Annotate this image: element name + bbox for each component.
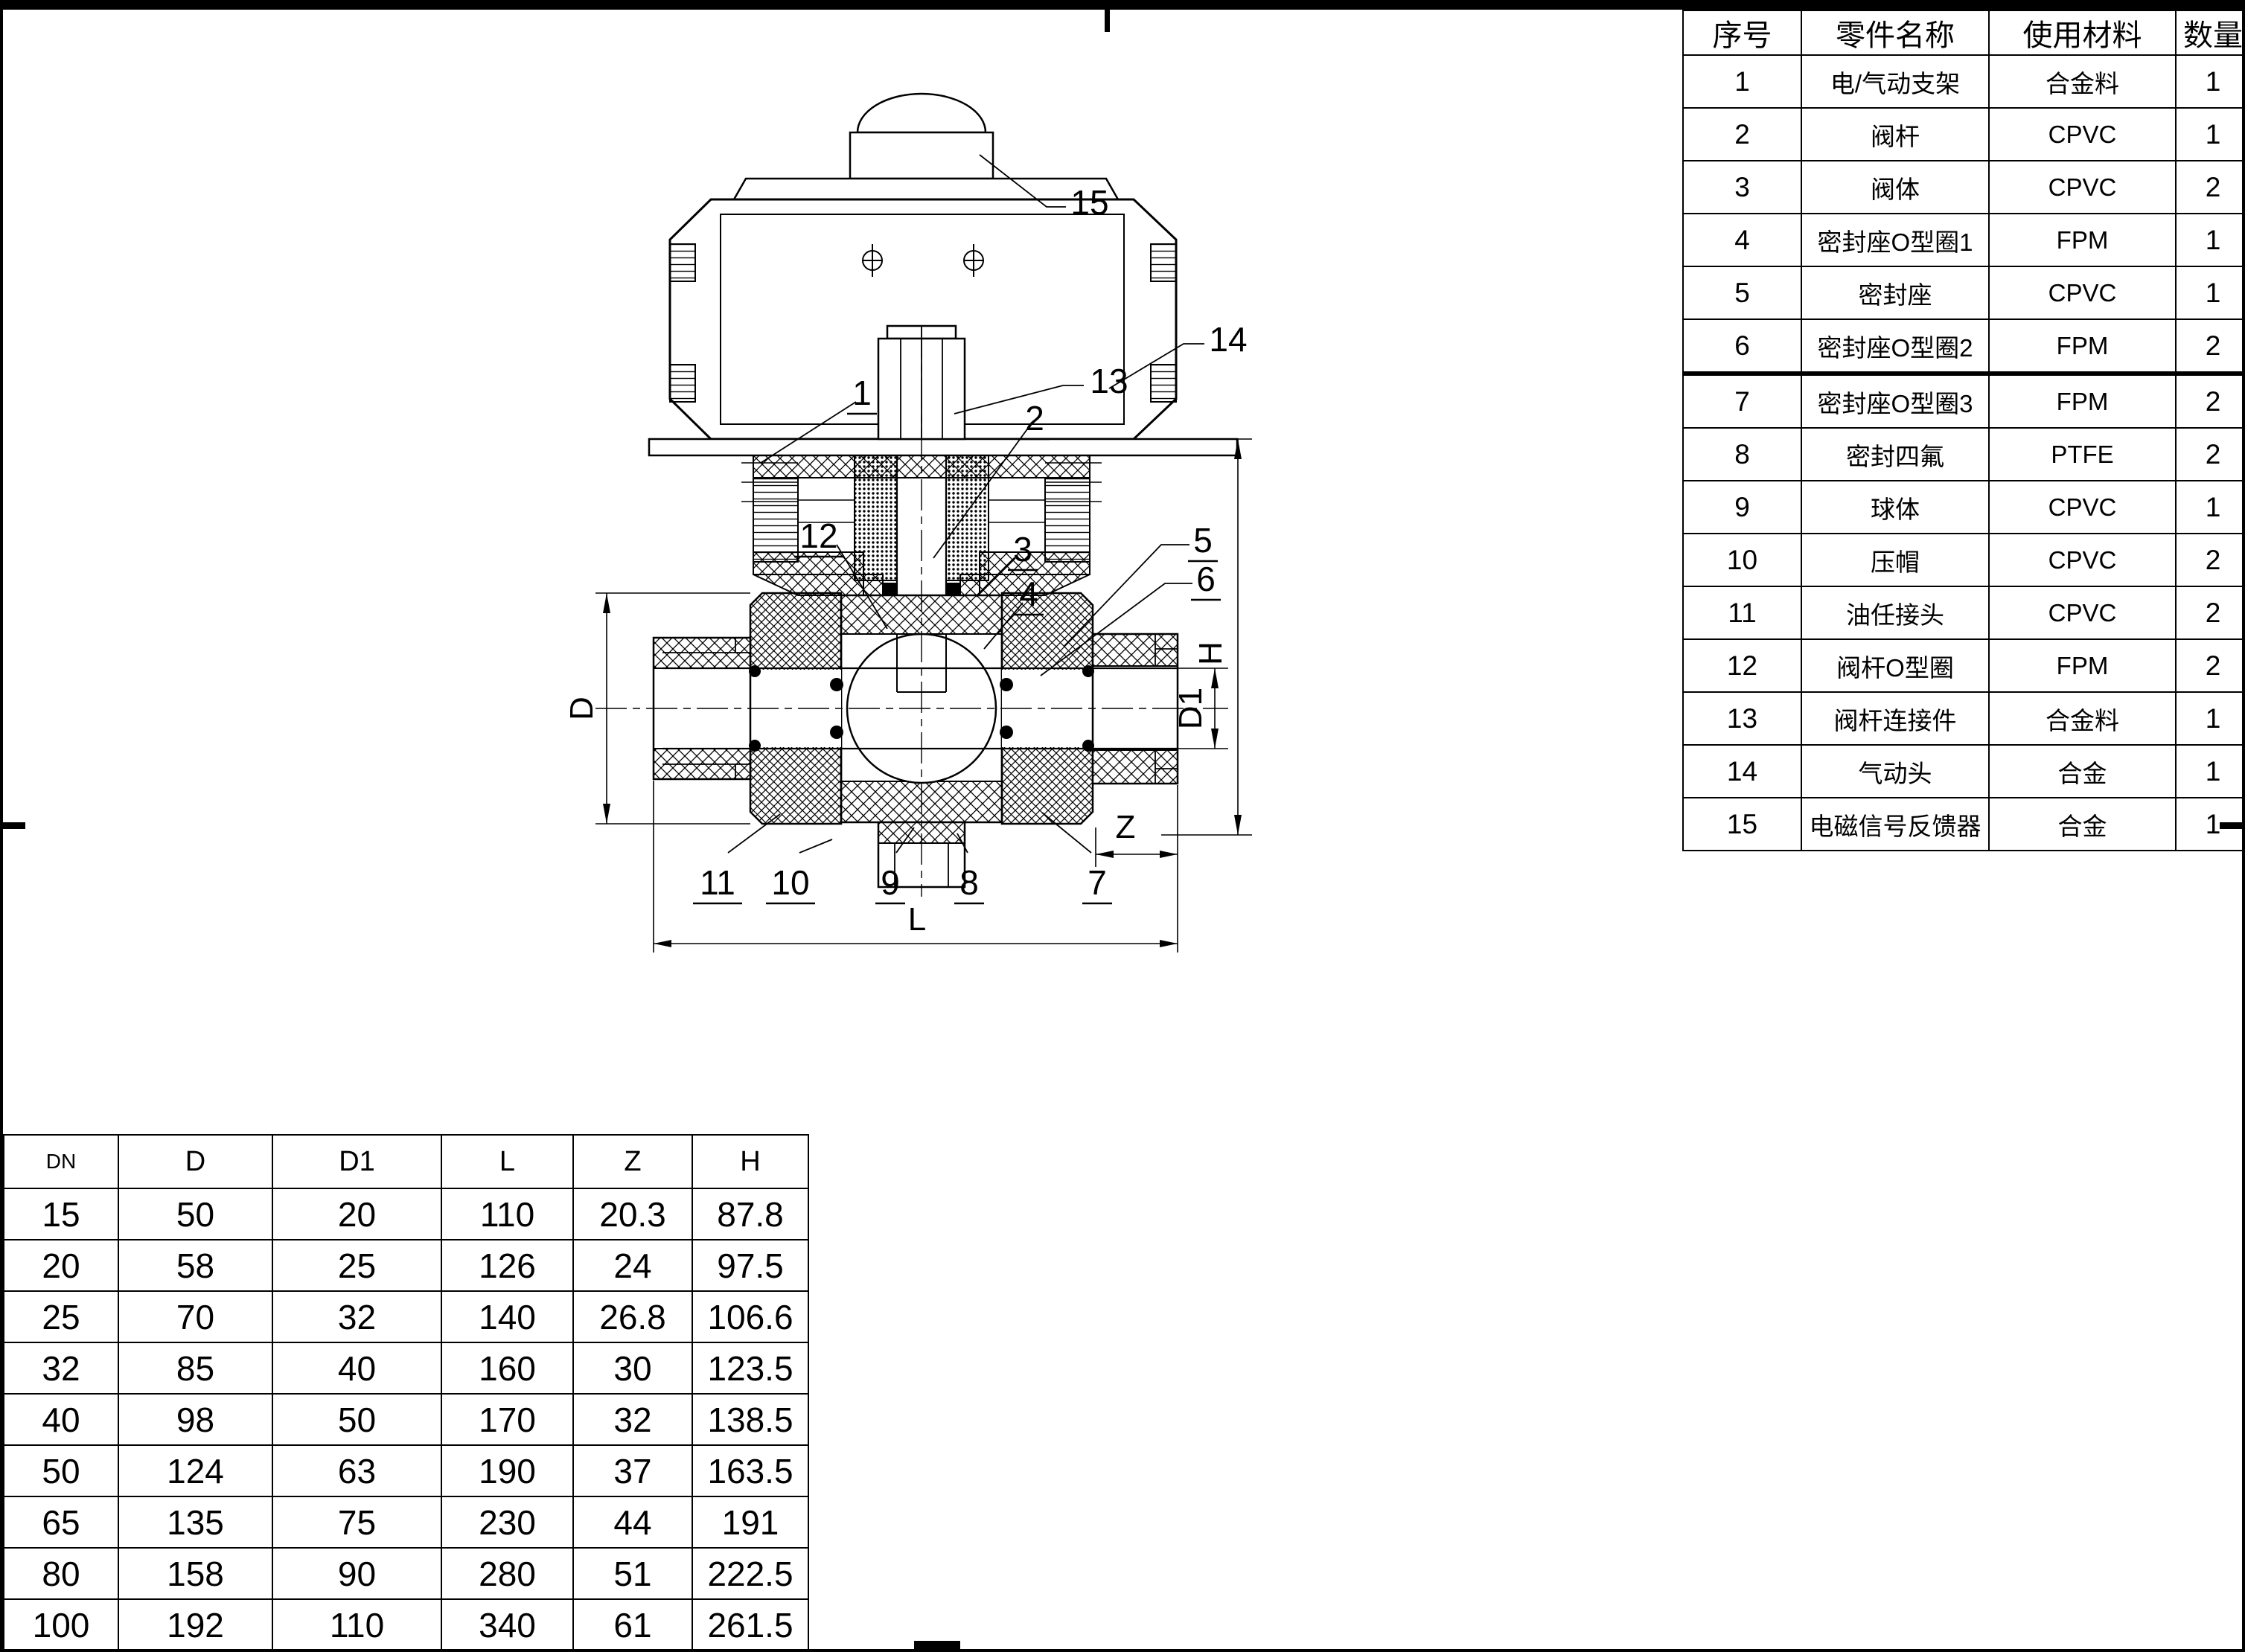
dim-label-D1: D1 — [1172, 688, 1209, 729]
parts-table-row: 4密封座O型圈1FPM1 — [1683, 214, 2245, 266]
parts-col-header: 使用材料 — [1989, 10, 2176, 55]
dims-cell: 280 — [441, 1548, 573, 1599]
dims-cell: 261.5 — [692, 1599, 808, 1651]
dims-cell: 191 — [692, 1496, 808, 1548]
dims-cell: 97.5 — [692, 1240, 808, 1291]
dims-cell: 140 — [441, 1291, 573, 1342]
parts-table-row: 3阀体CPVC2 — [1683, 161, 2245, 214]
part-material: FPM — [1989, 374, 2176, 428]
part-no: 11 — [1683, 586, 1801, 639]
part-qty: 1 — [2176, 55, 2245, 108]
part-callout-7: 7 — [1088, 863, 1107, 902]
parts-table-row: 5密封座CPVC1 — [1683, 266, 2245, 319]
dims-cell: 25 — [272, 1240, 441, 1291]
parts-col-header: 零件名称 — [1801, 10, 1989, 55]
part-no: 6 — [1683, 319, 1801, 374]
dims-cell: 106.6 — [692, 1291, 808, 1342]
part-qty: 2 — [2176, 586, 2245, 639]
dims-cell: 138.5 — [692, 1394, 808, 1445]
part-name: 油任接头 — [1801, 586, 1989, 639]
dims-cell: 123.5 — [692, 1342, 808, 1394]
part-callout-15: 15 — [1070, 183, 1108, 222]
dims-cell: 50 — [118, 1188, 272, 1240]
dims-cell: 25 — [4, 1291, 118, 1342]
part-callout-5: 5 — [1193, 521, 1213, 560]
dim-label-Z: Z — [1116, 809, 1136, 845]
part-name: 密封座O型圈2 — [1801, 319, 1989, 374]
dims-cell: 170 — [441, 1394, 573, 1445]
part-qty: 1 — [2176, 745, 2245, 798]
parts-table-row: 14气动头合金1 — [1683, 745, 2245, 798]
dims-cell: 50 — [4, 1445, 118, 1496]
dims-cell: 40 — [4, 1394, 118, 1445]
part-no: 5 — [1683, 266, 1801, 319]
dims-cell: 24 — [573, 1240, 692, 1291]
part-material: CPVC — [1989, 481, 2176, 534]
part-no: 9 — [1683, 481, 1801, 534]
dims-cell: 20 — [272, 1188, 441, 1240]
dims-table-row: 651357523044191 — [4, 1496, 808, 1548]
part-callout-3: 3 — [1013, 530, 1032, 569]
dims-col-header: DN — [4, 1135, 118, 1188]
part-no: 12 — [1683, 639, 1801, 692]
part-no: 2 — [1683, 108, 1801, 161]
part-qty: 2 — [2176, 639, 2245, 692]
parts-table-row: 1电/气动支架合金料1 — [1683, 55, 2245, 108]
part-callout-8: 8 — [959, 863, 979, 902]
callout-leader-11 — [728, 814, 780, 853]
part-qty: 1 — [2176, 108, 2245, 161]
dims-cell: 163.5 — [692, 1445, 808, 1496]
dims-table-row: 25703214026.8106.6 — [4, 1291, 808, 1342]
parts-table-row: 12阀杆O型圈FPM2 — [1683, 639, 2245, 692]
parts-col-header: 数量 — [2176, 10, 2245, 55]
part-name: 电磁信号反馈器 — [1801, 798, 1989, 851]
dims-table-row: 40985017032138.5 — [4, 1394, 808, 1445]
parts-table-row: 2阀杆CPVC1 — [1683, 108, 2245, 161]
parts-table-row: 10压帽CPVC2 — [1683, 534, 2245, 586]
part-material: FPM — [1989, 639, 2176, 692]
parts-table-row: 6密封座O型圈2FPM2 — [1683, 319, 2245, 374]
dims-cell: 61 — [573, 1599, 692, 1651]
dimension-table: DNDD1LZH 15502011020.387.82058251262497.… — [3, 1134, 809, 1651]
part-material: 合金料 — [1989, 55, 2176, 108]
dims-cell: 160 — [441, 1342, 573, 1394]
part-material: PTFE — [1989, 428, 2176, 481]
dims-table-row: 10019211034061261.5 — [4, 1599, 808, 1651]
part-callout-10: 10 — [771, 863, 809, 902]
dims-table-row: 501246319037163.5 — [4, 1445, 808, 1496]
part-qty: 2 — [2176, 534, 2245, 586]
part-name: 阀杆连接件 — [1801, 692, 1989, 745]
dims-table-row: 32854016030123.5 — [4, 1342, 808, 1394]
dim-label-L: L — [908, 901, 926, 938]
part-no: 8 — [1683, 428, 1801, 481]
part-callout-1: 1 — [852, 374, 872, 412]
dims-cell: 32 — [573, 1394, 692, 1445]
actuator-bracket — [649, 439, 1237, 455]
dims-col-header: D1 — [272, 1135, 441, 1188]
part-no: 14 — [1683, 745, 1801, 798]
part-material: 合金 — [1989, 798, 2176, 851]
part-name: 密封四氟 — [1801, 428, 1989, 481]
dims-col-header: L — [441, 1135, 573, 1188]
part-name: 球体 — [1801, 481, 1989, 534]
dims-cell: 110 — [272, 1599, 441, 1651]
part-qty: 1 — [2176, 266, 2245, 319]
dims-cell: 124 — [118, 1445, 272, 1496]
parts-table-row: 9球体CPVC1 — [1683, 481, 2245, 534]
dims-table-row: 15502011020.387.8 — [4, 1188, 808, 1240]
callout-leader-10 — [799, 839, 832, 853]
dims-cell: 85 — [118, 1342, 272, 1394]
part-qty: 1 — [2176, 692, 2245, 745]
part-material: 合金 — [1989, 745, 2176, 798]
dims-cell: 51 — [573, 1548, 692, 1599]
part-qty: 1 — [2176, 214, 2245, 266]
part-material: CPVC — [1989, 108, 2176, 161]
dims-cell: 20 — [4, 1240, 118, 1291]
dims-cell: 32 — [272, 1291, 441, 1342]
part-name: 压帽 — [1801, 534, 1989, 586]
part-material: CPVC — [1989, 266, 2176, 319]
parts-table-row: 8密封四氟PTFE2 — [1683, 428, 2245, 481]
part-qty: 1 — [2176, 481, 2245, 534]
part-no: 13 — [1683, 692, 1801, 745]
part-name: 阀杆 — [1801, 108, 1989, 161]
dims-cell: 63 — [272, 1445, 441, 1496]
drawing-sheet: 123456789101112131415DD1HZL 序号零件名称使用材料数量… — [0, 0, 2245, 1652]
dims-cell: 15 — [4, 1188, 118, 1240]
parts-table-row: 7密封座O型圈3FPM2 — [1683, 374, 2245, 428]
part-qty: 2 — [2176, 161, 2245, 214]
dims-cell: 230 — [441, 1496, 573, 1548]
dims-cell: 190 — [441, 1445, 573, 1496]
dims-col-header: Z — [573, 1135, 692, 1188]
part-name: 电/气动支架 — [1801, 55, 1989, 108]
parts-list-table: 序号零件名称使用材料数量 1电/气动支架合金料12阀杆CPVC13阀体CPVC2… — [1682, 10, 2245, 851]
part-callout-2: 2 — [1025, 399, 1044, 438]
dims-cell: 58 — [118, 1240, 272, 1291]
dims-cell: 80 — [4, 1548, 118, 1599]
dims-cell: 90 — [272, 1548, 441, 1599]
part-name: 密封座O型圈1 — [1801, 214, 1989, 266]
dims-cell: 100 — [4, 1599, 118, 1651]
part-no: 10 — [1683, 534, 1801, 586]
dims-cell: 222.5 — [692, 1548, 808, 1599]
part-no: 3 — [1683, 161, 1801, 214]
part-name: 密封座O型圈3 — [1801, 374, 1989, 428]
part-no: 15 — [1683, 798, 1801, 851]
dims-cell: 158 — [118, 1548, 272, 1599]
dims-cell: 75 — [272, 1496, 441, 1548]
dims-table-row: 2058251262497.5 — [4, 1240, 808, 1291]
part-no: 7 — [1683, 374, 1801, 428]
signal-feedback-dome — [850, 94, 993, 179]
part-name: 密封座 — [1801, 266, 1989, 319]
part-callout-12: 12 — [799, 516, 837, 555]
dims-cell: 50 — [272, 1394, 441, 1445]
part-qty: 2 — [2176, 428, 2245, 481]
part-callout-4: 4 — [1019, 574, 1038, 613]
dims-cell: 40 — [272, 1342, 441, 1394]
dim-label-D: D — [563, 697, 600, 720]
dims-cell: 20.3 — [573, 1188, 692, 1240]
part-qty: 2 — [2176, 374, 2245, 428]
dims-cell: 110 — [441, 1188, 573, 1240]
part-no: 1 — [1683, 55, 1801, 108]
part-callout-6: 6 — [1196, 560, 1216, 598]
dims-cell: 192 — [118, 1599, 272, 1651]
part-name: 气动头 — [1801, 745, 1989, 798]
part-qty: 1 — [2176, 798, 2245, 851]
part-callout-11: 11 — [700, 863, 735, 902]
part-material: FPM — [1989, 319, 2176, 374]
part-no: 4 — [1683, 214, 1801, 266]
part-qty: 2 — [2176, 319, 2245, 374]
dims-table-row: 801589028051222.5 — [4, 1548, 808, 1599]
dims-cell: 30 — [573, 1342, 692, 1394]
parts-table-row: 13阀杆连接件合金料1 — [1683, 692, 2245, 745]
part-material: 合金料 — [1989, 692, 2176, 745]
parts-table-row: 15电磁信号反馈器合金1 — [1683, 798, 2245, 851]
part-material: CPVC — [1989, 586, 2176, 639]
part-name: 阀杆O型圈 — [1801, 639, 1989, 692]
part-callout-9: 9 — [881, 863, 900, 902]
dims-cell: 44 — [573, 1496, 692, 1548]
dims-cell: 37 — [573, 1445, 692, 1496]
dims-col-header: H — [692, 1135, 808, 1188]
parts-col-header: 序号 — [1683, 10, 1801, 55]
part-material: FPM — [1989, 214, 2176, 266]
part-name: 阀体 — [1801, 161, 1989, 214]
dims-cell: 65 — [4, 1496, 118, 1548]
part-material: CPVC — [1989, 161, 2176, 214]
dims-cell: 26.8 — [573, 1291, 692, 1342]
dims-cell: 32 — [4, 1342, 118, 1394]
dims-col-header: D — [118, 1135, 272, 1188]
part-callout-14: 14 — [1209, 320, 1247, 359]
dims-cell: 126 — [441, 1240, 573, 1291]
actuator-top-plate — [734, 179, 1118, 199]
dims-cell: 98 — [118, 1394, 272, 1445]
parts-table-row: 11油任接头CPVC2 — [1683, 586, 2245, 639]
dims-cell: 340 — [441, 1599, 573, 1651]
dims-cell: 70 — [118, 1291, 272, 1342]
part-material: CPVC — [1989, 534, 2176, 586]
dims-cell: 135 — [118, 1496, 272, 1548]
dims-cell: 87.8 — [692, 1188, 808, 1240]
dim-label-H: H — [1192, 641, 1229, 665]
